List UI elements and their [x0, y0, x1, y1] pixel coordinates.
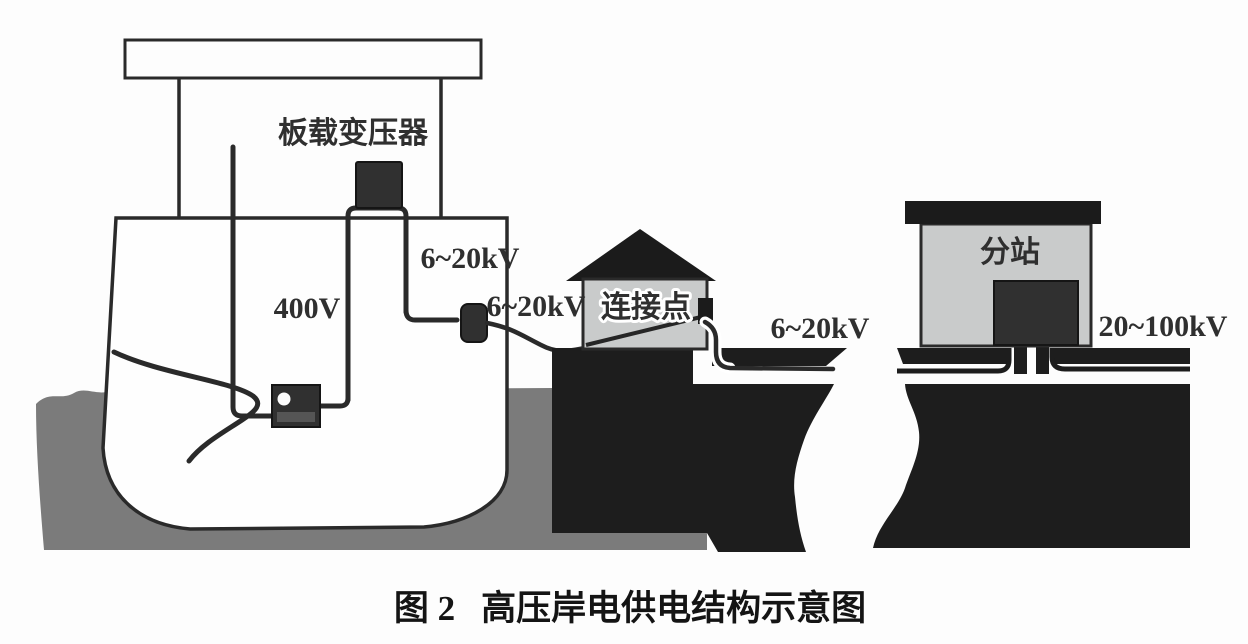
- shore-surface-bar-left: [897, 348, 1010, 364]
- grid-voltage-label: 20~100kV: [1099, 310, 1228, 343]
- plug-voltage-label: 6~20kV: [487, 290, 586, 323]
- shore-power-plug: [461, 304, 487, 342]
- ship-distribution-box: [272, 385, 320, 427]
- distribution-box-lamp: [278, 393, 291, 406]
- connection-house-roof: [566, 229, 716, 281]
- substation-roof-bar: [905, 201, 1101, 224]
- figure-caption-title: 高压岸电供电结构示意图: [481, 589, 866, 628]
- substation-transformer-box: [994, 281, 1078, 345]
- substation-building: [905, 201, 1101, 346]
- shore-surface-bar-right: [1053, 348, 1190, 364]
- figure-caption-number: 图 2: [394, 589, 455, 628]
- distribution-box-vent: [277, 412, 315, 422]
- riser-voltage-label: 6~20kV: [421, 242, 520, 275]
- shore-power-diagram: 板载变压器 400V 6~20kV 6~20kV 连接点 6~20kV 分站 2…: [0, 0, 1248, 644]
- figure-canvas: 板载变压器 400V 6~20kV 6~20kV 连接点 6~20kV 分站 2…: [0, 0, 1248, 644]
- connection-point-label: 连接点: [601, 291, 691, 324]
- substation-stem-right: [1036, 344, 1049, 374]
- connection-point-house: [566, 229, 716, 349]
- bridge-deck-bar: [125, 40, 481, 78]
- shore-cable-voltage-label: 6~20kV: [771, 312, 870, 345]
- low-voltage-label: 400V: [274, 292, 341, 325]
- onboard-transformer-box: [356, 162, 402, 208]
- shore-ground-mass: [873, 384, 1190, 548]
- shore-land: [873, 344, 1190, 548]
- figure-caption: 图 2高压岸电供电结构示意图: [394, 589, 866, 628]
- substation-label: 分站: [980, 236, 1040, 269]
- substation-stem-left: [1014, 344, 1027, 374]
- onboard-transformer-label: 板载变压器: [278, 116, 429, 150]
- quay-ground: [552, 348, 834, 552]
